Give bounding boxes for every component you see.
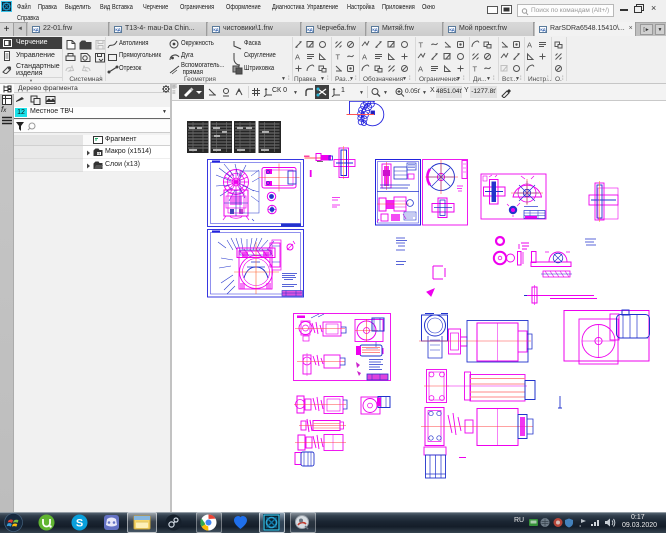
svg-text:A: A [418,65,423,74]
svg-text:T: T [473,65,478,74]
svg-text:A: A [295,53,300,62]
svg-text:A: A [362,53,367,62]
svg-text:S: S [76,518,83,530]
svg-text:T: T [336,53,341,62]
svg-text:A: A [527,41,532,50]
svg-text:T: T [419,41,424,50]
